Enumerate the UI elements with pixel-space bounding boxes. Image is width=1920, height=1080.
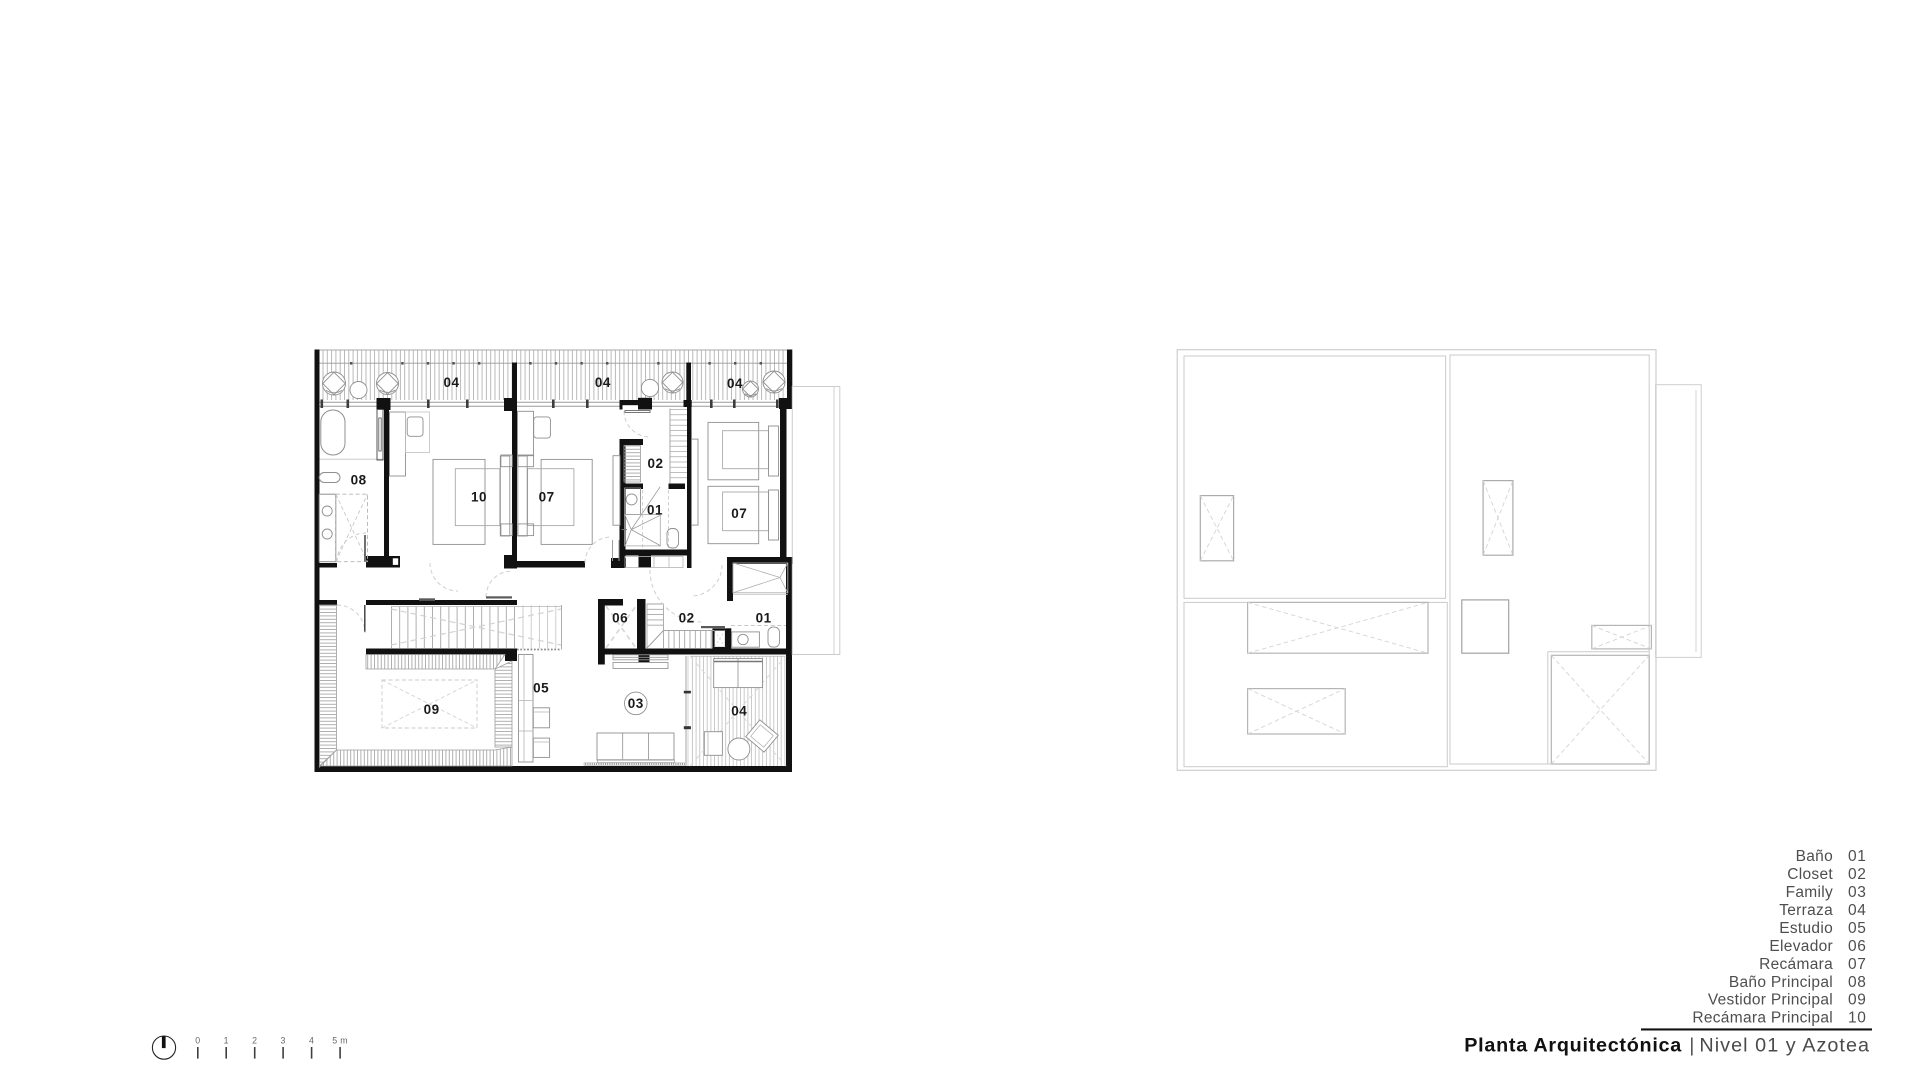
svg-text:04: 04 bbox=[727, 376, 743, 391]
svg-text:10: 10 bbox=[471, 490, 487, 505]
svg-text:Terraza: Terraza bbox=[1779, 902, 1833, 919]
svg-text:Planta Arquitectónica: Planta Arquitectónica bbox=[1464, 1035, 1682, 1057]
svg-text:1: 1 bbox=[224, 1035, 229, 1045]
svg-text:Closet: Closet bbox=[1787, 866, 1833, 883]
svg-text:02: 02 bbox=[647, 456, 663, 471]
svg-text:04: 04 bbox=[731, 704, 747, 719]
svg-text:Baño: Baño bbox=[1796, 848, 1833, 865]
svg-text:09: 09 bbox=[424, 702, 440, 717]
svg-text:Nivel 01 y Azotea: Nivel 01 y Azotea bbox=[1699, 1035, 1870, 1057]
svg-text:2: 2 bbox=[252, 1035, 257, 1045]
svg-text:Vestidor Principal: Vestidor Principal bbox=[1708, 992, 1833, 1009]
svg-text:Recámara Principal: Recámara Principal bbox=[1692, 1010, 1833, 1027]
svg-text:04: 04 bbox=[1848, 902, 1866, 919]
svg-text:05: 05 bbox=[1848, 920, 1866, 937]
svg-text:03: 03 bbox=[1848, 884, 1866, 901]
svg-text:04: 04 bbox=[443, 375, 459, 390]
svg-text:02: 02 bbox=[1848, 866, 1866, 883]
svg-text:10: 10 bbox=[1848, 1010, 1866, 1027]
svg-text:06: 06 bbox=[612, 611, 628, 626]
svg-text:04: 04 bbox=[595, 375, 611, 390]
svg-text:08: 08 bbox=[351, 473, 367, 488]
svg-text:Baño Principal: Baño Principal bbox=[1729, 974, 1833, 991]
svg-text:02: 02 bbox=[679, 611, 695, 626]
svg-text:07: 07 bbox=[539, 490, 555, 505]
svg-text:06: 06 bbox=[1848, 938, 1866, 955]
svg-text:0: 0 bbox=[195, 1035, 200, 1045]
svg-text:07: 07 bbox=[731, 506, 747, 521]
svg-text:03: 03 bbox=[628, 696, 644, 711]
svg-text:5 m: 5 m bbox=[332, 1035, 348, 1045]
svg-text:01: 01 bbox=[647, 503, 663, 518]
svg-text:01: 01 bbox=[1848, 848, 1866, 865]
svg-text:Recámara: Recámara bbox=[1759, 956, 1833, 973]
svg-text:08: 08 bbox=[1848, 974, 1866, 991]
svg-text:3: 3 bbox=[280, 1035, 285, 1045]
svg-text:4: 4 bbox=[309, 1035, 314, 1045]
svg-text:09: 09 bbox=[1848, 992, 1866, 1009]
svg-text:Estudio: Estudio bbox=[1779, 920, 1833, 937]
svg-text:Family: Family bbox=[1786, 884, 1833, 901]
svg-text:01: 01 bbox=[756, 611, 772, 626]
svg-text:|: | bbox=[1689, 1035, 1694, 1057]
svg-text:07: 07 bbox=[1848, 956, 1866, 973]
svg-text:Elevador: Elevador bbox=[1769, 938, 1833, 955]
svg-text:05: 05 bbox=[533, 681, 549, 696]
